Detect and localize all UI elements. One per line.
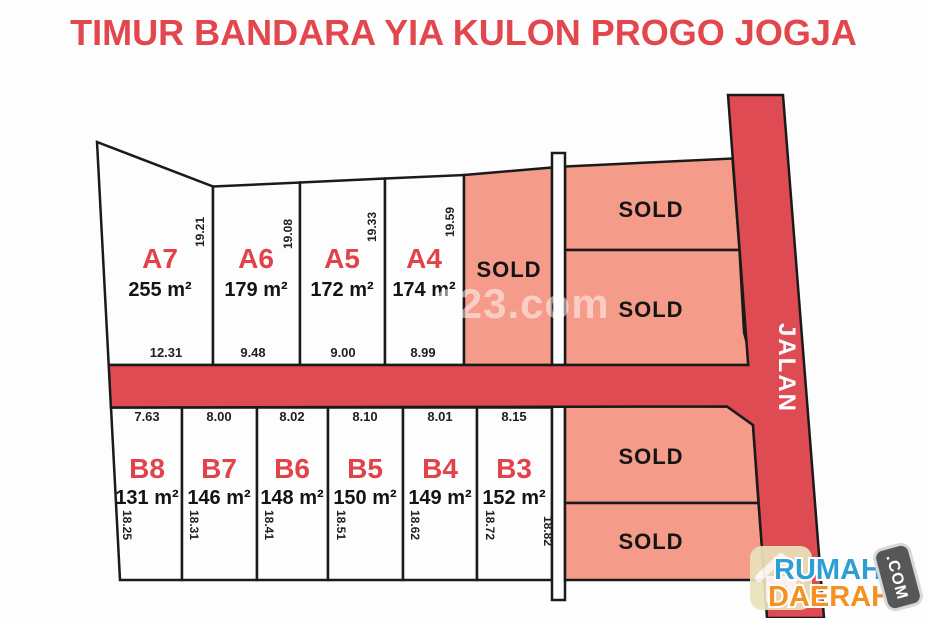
plot-b3-front-dim: 8.15 — [501, 409, 526, 424]
plot-b3-side-right-dim: 18.82 — [541, 516, 555, 546]
path-strip-top — [552, 153, 565, 365]
logo: RUMAH DAERAH .COM — [750, 542, 923, 613]
plot-b7-side-dim: 18.31 — [187, 510, 201, 540]
logo-text-daerah: DAERAH — [768, 581, 892, 613]
plot-b6-side-dim: 18.41 — [262, 510, 276, 540]
plot-b8-area: 131 m² — [115, 487, 179, 509]
plot-b3-area: 152 m² — [482, 487, 546, 509]
plot-b8-id: B8 — [129, 453, 165, 484]
plot-b4-id: B4 — [422, 453, 458, 484]
plot-b7-id: B7 — [201, 453, 237, 484]
sold-label-bottom-right-1: SOLD — [618, 444, 683, 469]
plot-b7-area: 146 m² — [187, 487, 251, 509]
plot-a6-front-dim: 9.48 — [240, 345, 265, 360]
plot-b3-side-dim: 18.72 — [483, 510, 497, 540]
plot-b4-front-dim: 8.01 — [427, 409, 452, 424]
plot-a5-area: 172 m² — [310, 279, 374, 301]
flyer: TIMUR BANDARA YIA KULON PROGO JOGJA JALA… — [0, 0, 927, 618]
path-strip-bottom — [552, 405, 565, 600]
plot-a5-id: A5 — [324, 243, 360, 274]
plot-b6-id: B6 — [274, 453, 310, 484]
sold-label-bottom-right-2: SOLD — [618, 529, 683, 554]
sold-label-top-right-1: SOLD — [618, 197, 683, 222]
sold-label-top-right-2: SOLD — [618, 297, 683, 322]
plot-b5-side-dim: 18.51 — [334, 510, 348, 540]
plot-a7-side-dim: 19.21 — [193, 217, 207, 247]
plot-a4-front-dim: 8.99 — [410, 345, 435, 360]
sold-label-top-left: SOLD — [476, 257, 541, 282]
plot-b5-front-dim: 8.10 — [352, 409, 377, 424]
plot-b4-area: 149 m² — [408, 487, 472, 509]
plot-a7-front-dim: 12.31 — [150, 345, 183, 360]
watermark-text: 123.com — [434, 280, 609, 327]
site-plan: JALAN A7 255 m² 19.21 12.31 A6 179 m² 19… — [0, 0, 927, 618]
plot-a6-area: 179 m² — [224, 279, 288, 301]
plot-b7-front-dim: 8.00 — [206, 409, 231, 424]
plot-b8-front-dim: 7.63 — [134, 409, 159, 424]
plot-a4-id: A4 — [406, 243, 442, 274]
plot-b3-id: B3 — [496, 453, 532, 484]
plot-a4-side-dim: 19.59 — [443, 207, 457, 237]
road-jalan-label: JALAN — [773, 323, 800, 413]
plot-b4-side-dim: 18.62 — [408, 510, 422, 540]
plot-b6-area: 148 m² — [260, 487, 324, 509]
plot-a6-side-dim: 19.08 — [281, 219, 295, 249]
plot-b5-area: 150 m² — [333, 487, 397, 509]
plot-b8-side-dim: 18.25 — [120, 510, 134, 540]
plot-a7-id: A7 — [142, 243, 178, 274]
plot-a5-side-dim: 19.33 — [365, 212, 379, 242]
plot-a6-id: A6 — [238, 243, 274, 274]
plot-a7-area: 255 m² — [128, 279, 192, 301]
plot-a5-front-dim: 9.00 — [330, 345, 355, 360]
plot-b6-front-dim: 8.02 — [279, 409, 304, 424]
plot-b5-id: B5 — [347, 453, 383, 484]
